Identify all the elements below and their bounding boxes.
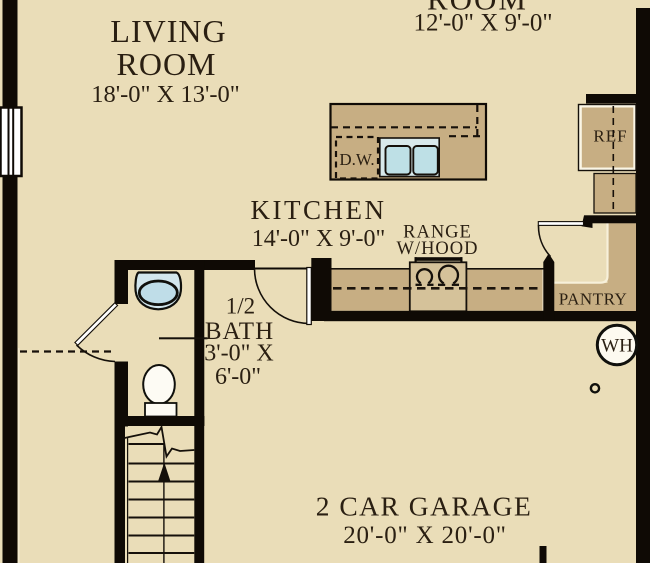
svg-text:14'-0" X 9'-0": 14'-0" X 9'-0" — [252, 226, 386, 252]
svg-text:6'-0": 6'-0" — [215, 364, 261, 390]
svg-text:12'-0" X 9'-0": 12'-0" X 9'-0" — [413, 10, 552, 37]
svg-text:ROOM: ROOM — [116, 46, 216, 82]
svg-text:WH: WH — [601, 336, 633, 357]
svg-text:KITCHEN: KITCHEN — [251, 195, 387, 225]
svg-text:18'-0" X 13'-0": 18'-0" X 13'-0" — [91, 81, 240, 108]
svg-text:2 CAR GARAGE: 2 CAR GARAGE — [316, 491, 533, 522]
svg-text:D.W.: D.W. — [339, 150, 374, 169]
svg-text:REF: REF — [593, 127, 627, 146]
svg-text:W/HOOD: W/HOOD — [396, 239, 478, 259]
svg-text:1/2: 1/2 — [226, 294, 255, 319]
svg-text:3'-0" X: 3'-0" X — [204, 341, 273, 367]
svg-text:20'-0" X 20'-0": 20'-0" X 20'-0" — [343, 522, 507, 549]
svg-text:PANTRY: PANTRY — [559, 290, 628, 309]
svg-text:LIVING: LIVING — [110, 13, 226, 49]
